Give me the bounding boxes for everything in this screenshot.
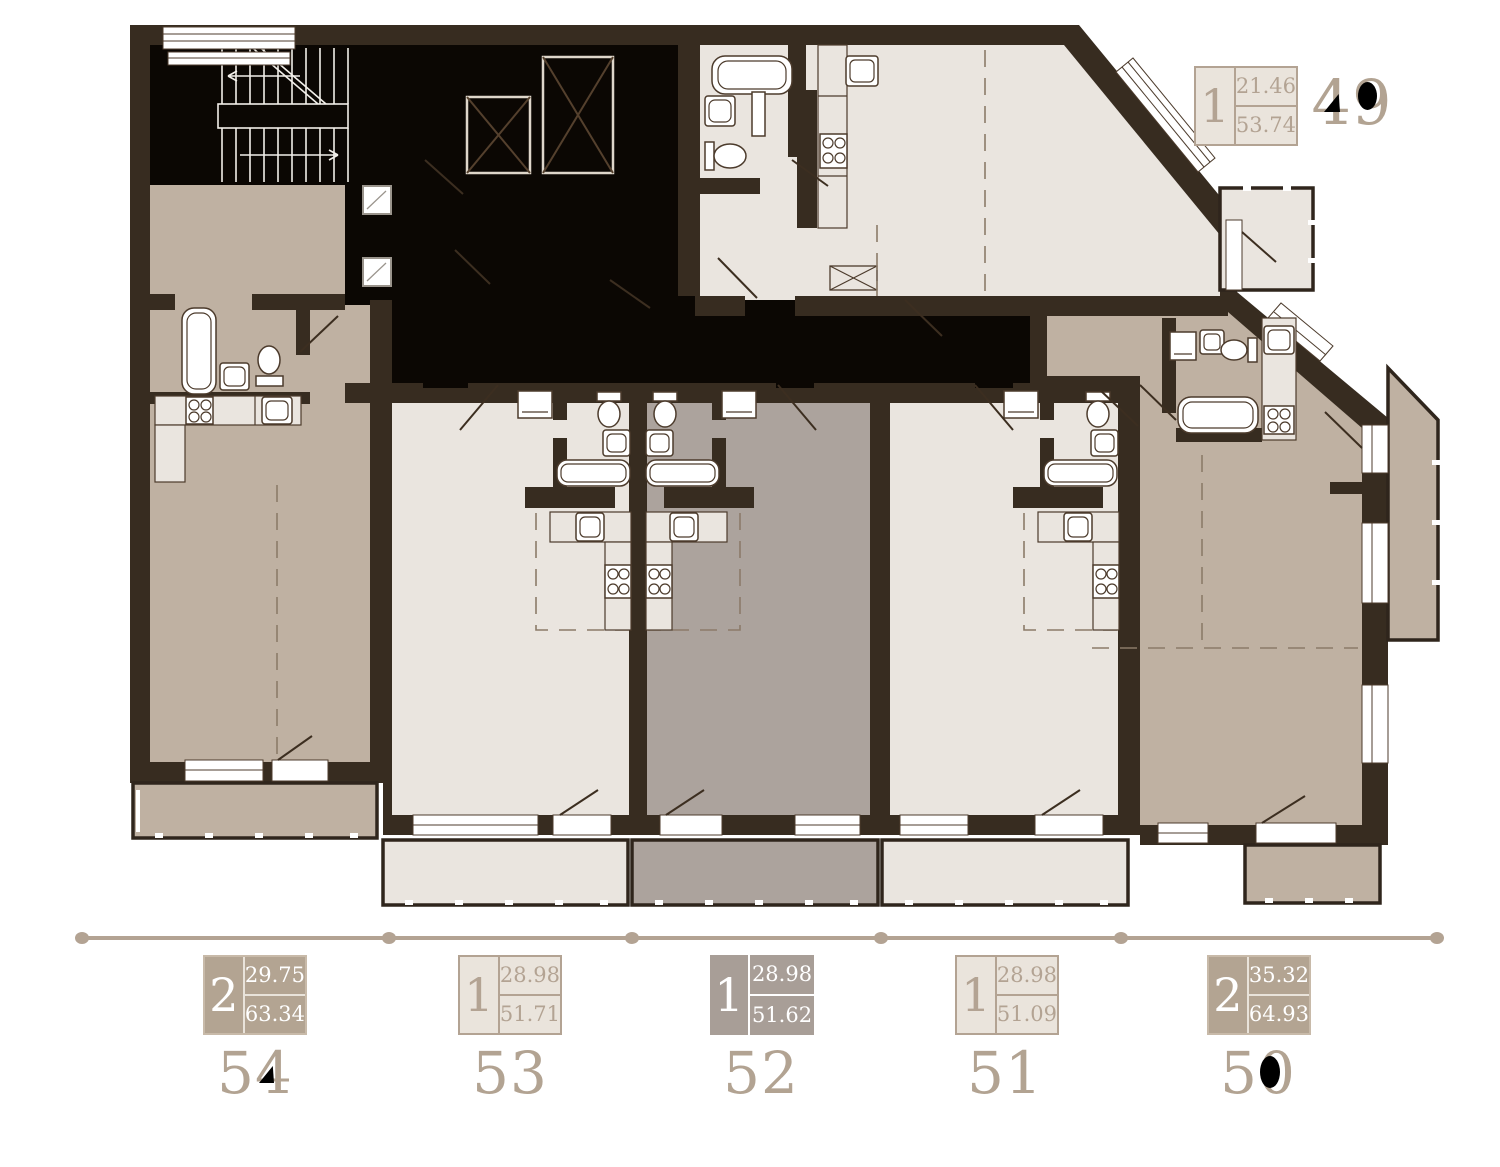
dimension-marker: [75, 932, 89, 944]
living-area: 28.98: [750, 955, 814, 994]
washer-icon: [1170, 332, 1196, 360]
floorplan-page: .w{fill:#372c20;} .blk{fill:#0b0703;} .r…: [0, 0, 1500, 1167]
living-area: 29.75: [245, 957, 305, 994]
apartment-49-number[interactable]: 49: [1292, 72, 1412, 134]
apartment-53-number[interactable]: 53: [450, 1044, 570, 1102]
total-area: 63.34: [245, 994, 305, 1033]
rooms-count: 1: [460, 957, 500, 1033]
stove-icon: [1093, 565, 1119, 598]
entrance-stoop: [163, 27, 295, 65]
dimension-marker: [874, 932, 888, 944]
toilet-icon: [653, 392, 677, 427]
apartment-50-number[interactable]: 50: [1198, 1044, 1318, 1102]
stove-icon: [186, 397, 213, 424]
dimension-marker: [1114, 932, 1128, 944]
stove-icon: [646, 565, 672, 598]
rooms-count: 2: [1209, 957, 1249, 1033]
living-area: 35.32: [1249, 957, 1309, 994]
total-area: 51.71: [500, 994, 560, 1033]
apartment-51-number[interactable]: 51: [945, 1044, 1065, 1102]
vent-shaft-icon: [830, 266, 877, 290]
wardrobe-icon: [1004, 391, 1038, 418]
toilet-icon: [705, 142, 746, 170]
total-area: 53.74: [1236, 105, 1296, 144]
apartment-53-badge[interactable]: 1 28.98 51.71: [458, 955, 562, 1035]
dimension-line: [81, 936, 1437, 940]
digit-counter-shape: [1260, 1056, 1280, 1088]
digit-counter-shape: [1358, 82, 1377, 110]
toilet-icon: [597, 392, 621, 427]
dimension-marker: [382, 932, 396, 944]
total-area: 51.62: [750, 994, 814, 1035]
stove-icon: [1264, 406, 1294, 434]
apartment-54-number[interactable]: 54: [195, 1044, 315, 1102]
terrace-50: [1388, 368, 1438, 640]
toilet-icon: [1221, 338, 1257, 362]
total-area: 64.93: [1249, 994, 1309, 1033]
living-area: 21.46: [1236, 68, 1296, 105]
dimension-marker: [1430, 932, 1444, 944]
rooms-count: 2: [205, 957, 245, 1033]
apartment-50-badge[interactable]: 2 35.32 64.93: [1207, 955, 1311, 1035]
apartment-49-badge[interactable]: 1 21.46 53.74: [1194, 66, 1298, 146]
dimension-marker: [625, 932, 639, 944]
apartment-52-number[interactable]: 52: [701, 1044, 821, 1102]
rooms-count: 1: [1196, 68, 1236, 144]
wardrobe-icon: [722, 391, 756, 418]
apartment-51-badge[interactable]: 1 28.98 51.09: [955, 955, 1059, 1035]
wardrobe-icon: [518, 391, 552, 418]
cabinet-icon: [752, 92, 765, 136]
rooms-count: 1: [957, 957, 997, 1033]
living-area: 28.98: [997, 957, 1057, 994]
total-area: 51.09: [997, 994, 1057, 1033]
rooms-count: 1: [710, 955, 750, 1035]
stove-icon: [820, 134, 847, 168]
stove-icon: [605, 565, 631, 598]
apartment-54-badge[interactable]: 2 29.75 63.34: [203, 955, 307, 1035]
apartment-52-badge[interactable]: 1 28.98 51.62: [710, 955, 814, 1035]
living-area: 28.98: [500, 957, 560, 994]
